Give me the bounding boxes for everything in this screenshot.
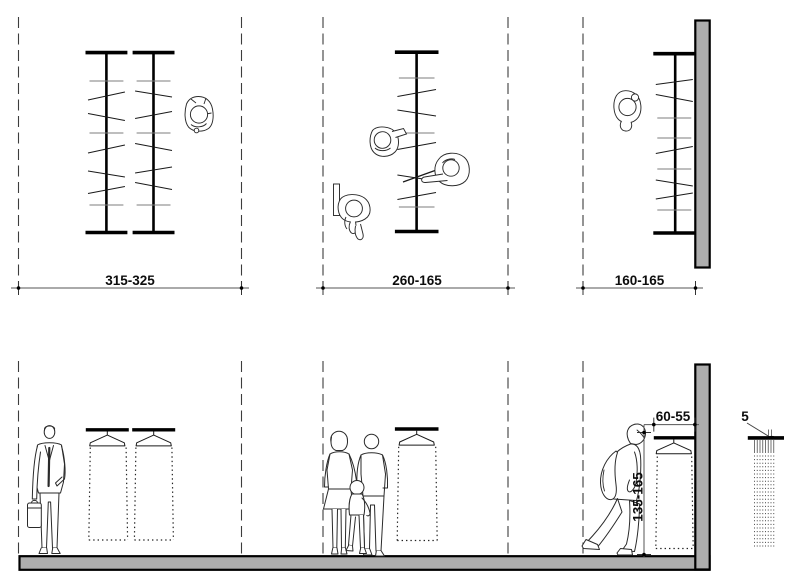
- svg-text:160-165: 160-165: [615, 273, 665, 288]
- svg-text:60-55: 60-55: [656, 409, 691, 424]
- svg-text:135-165: 135-165: [630, 472, 645, 522]
- svg-text:5: 5: [741, 409, 749, 424]
- svg-text:260-165: 260-165: [392, 273, 442, 288]
- svg-text:315-325: 315-325: [105, 273, 155, 288]
